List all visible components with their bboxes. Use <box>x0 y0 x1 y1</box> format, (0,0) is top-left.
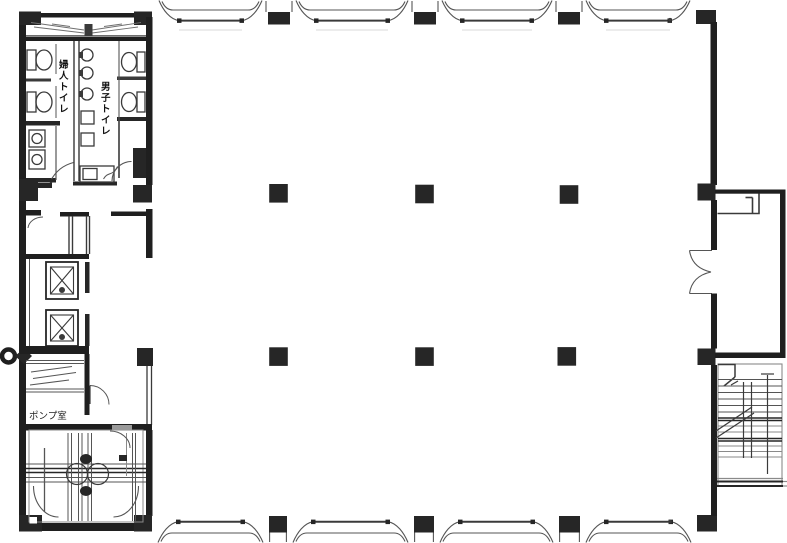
svg-text:レ: レ <box>101 126 111 137</box>
svg-text:男: 男 <box>101 82 111 93</box>
svg-text:イ: イ <box>59 93 69 104</box>
svg-text:人: 人 <box>59 70 69 82</box>
svg-text:子: 子 <box>101 93 111 104</box>
svg-text:イ: イ <box>101 115 111 126</box>
svg-text:ポンプ室: ポンプ室 <box>29 410 67 422</box>
svg-text:ト: ト <box>59 82 69 93</box>
svg-text:ト: ト <box>101 104 111 115</box>
svg-text:婦: 婦 <box>58 59 69 71</box>
svg-text:レ: レ <box>59 104 69 115</box>
